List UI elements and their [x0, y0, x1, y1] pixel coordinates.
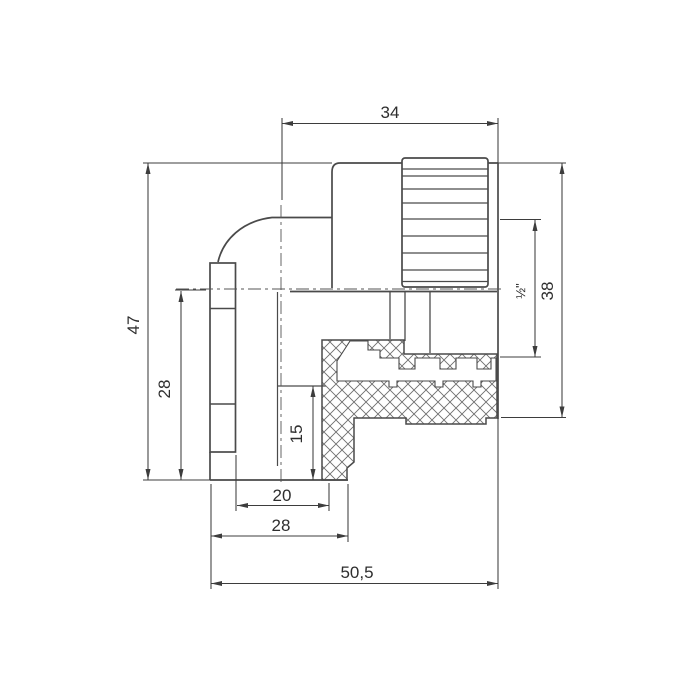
- dim-label-right-height: 38: [538, 282, 557, 301]
- thread-channel: [337, 341, 496, 387]
- knurled-insert: [402, 158, 488, 287]
- dim-label-overall-length: 50,5: [340, 563, 373, 582]
- dim-label-center-to-bottom: 28: [155, 380, 174, 399]
- dim-label-thread-size: ½": [513, 283, 528, 299]
- socket-flange-lines: [210, 309, 236, 405]
- dim-label-bottom-inner-width: 20: [273, 486, 292, 505]
- technical-drawing-canvas: 34 47 28 15 20 28 50,5 38 ½": [0, 0, 700, 700]
- dim-label-socket-depth: 15: [287, 425, 306, 444]
- elbow-arc: [218, 218, 332, 263]
- technical-drawing-page: 34 47 28 15 20 28 50,5 38 ½": [0, 0, 700, 700]
- dim-label-overall-height: 47: [124, 316, 143, 335]
- dim-label-top-width: 34: [381, 103, 400, 122]
- socket-flange: [210, 263, 236, 452]
- knurl-body: [402, 158, 488, 287]
- dim-label-bottom-width: 28: [272, 516, 291, 535]
- section-cut: [322, 340, 497, 480]
